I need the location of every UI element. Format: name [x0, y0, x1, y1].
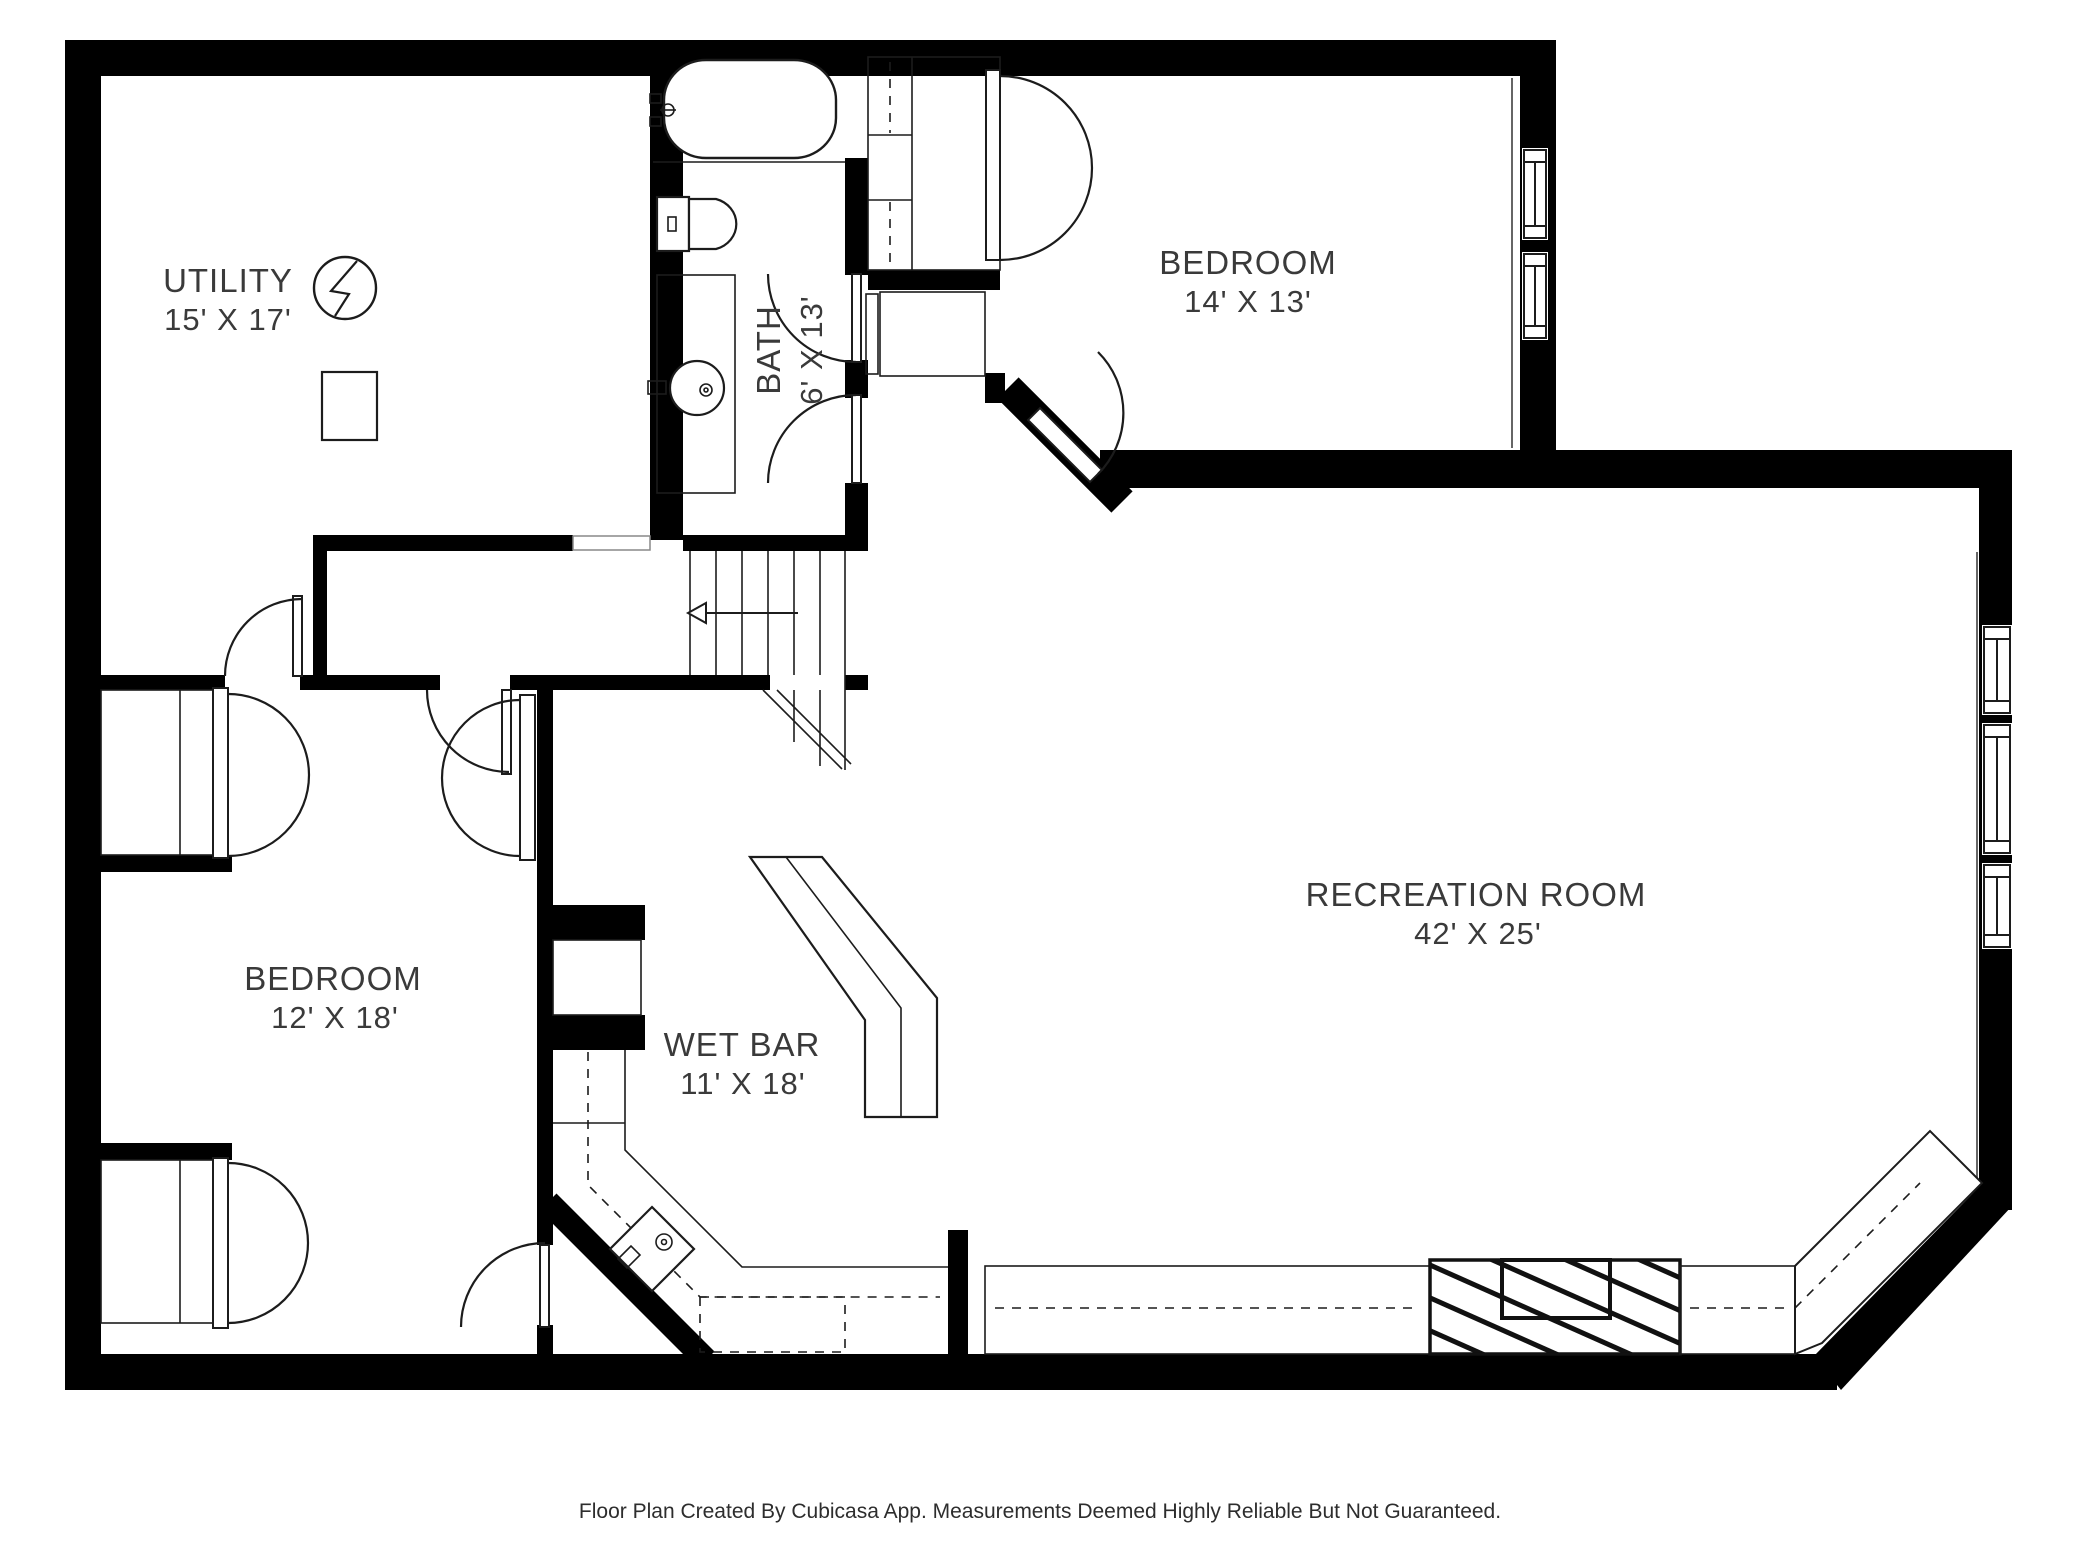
room-label: BEDROOM: [244, 960, 422, 997]
door-utility: [225, 596, 302, 692]
window-icon: [1982, 863, 2012, 949]
opening-threshold: [573, 536, 650, 550]
cabinet: [880, 292, 985, 376]
room-dims: 42' X 25': [1414, 916, 1542, 951]
door-wet-bar: [461, 1243, 553, 1327]
room-bath: BATH 6' X 13': [750, 295, 829, 404]
counter-right: [1680, 1266, 1795, 1354]
floor-plan-svg: UTILITY 15' X 17' BATH 6' X 13' BEDROOM …: [0, 0, 2080, 1560]
recreation-builtins: [985, 1131, 1982, 1354]
room-bedroom-top-right: BEDROOM 14' X 13': [1159, 244, 1337, 319]
utility-fixtures: [314, 257, 377, 440]
closet-bifold-bedroom-left-ne: [442, 695, 535, 860]
wet-bar-diagonal-wall: [548, 1202, 706, 1360]
room-dims: 6' X 13': [794, 295, 829, 404]
room-label: BATH: [750, 305, 787, 395]
closet-bedroom-left-2: [101, 1158, 308, 1328]
water-heater-icon: [314, 257, 376, 319]
room-recreation: RECREATION ROOM 42' X 25': [1306, 876, 1647, 951]
bathtub-icon: [650, 60, 845, 162]
media-counter: [985, 1266, 1430, 1354]
room-dims: 14' X 13': [1184, 284, 1312, 319]
closet-bedroom-left-1: [101, 688, 309, 858]
stair-direction-arrow: [688, 603, 798, 623]
toilet-icon: [657, 197, 736, 251]
room-label: UTILITY: [163, 262, 293, 299]
appliance-icon: [322, 372, 377, 440]
room-label: RECREATION ROOM: [1306, 876, 1647, 913]
room-dims: 12' X 18': [271, 1000, 399, 1035]
door-vestibule: [768, 395, 861, 483]
window-icon: [1982, 723, 2012, 855]
closet-bifold-bedroom-top-right: [986, 70, 1092, 260]
stair-break-line: [763, 690, 842, 769]
stair-break-line: [777, 690, 851, 764]
window-icon: [1522, 252, 1548, 340]
closets: [101, 57, 1092, 1328]
outer-walls: [65, 40, 2012, 1390]
room-label: BEDROOM: [1159, 244, 1337, 281]
appliance-niche: [553, 940, 641, 1015]
footer-disclaimer: Floor Plan Created By Cubicasa App. Meas…: [579, 1500, 1501, 1523]
room-wet-bar: WET BAR 11' X 18': [664, 1026, 821, 1101]
window-icon: [1982, 625, 2012, 715]
fireplace-icon: [1430, 1260, 1680, 1354]
room-dims: 15' X 17': [164, 302, 292, 337]
room-label: WET BAR: [664, 1026, 821, 1063]
window-icon: [1522, 148, 1548, 240]
room-utility: UTILITY 15' X 17': [163, 262, 293, 337]
floor-plan-page: UTILITY 15' X 17' BATH 6' X 13' BEDROOM …: [0, 0, 2080, 1560]
stairs: [688, 551, 851, 770]
closet-hall: [866, 57, 1000, 376]
room-bedroom-left: BEDROOM 12' X 18': [244, 960, 422, 1035]
room-dims: 11' X 18': [680, 1066, 805, 1101]
